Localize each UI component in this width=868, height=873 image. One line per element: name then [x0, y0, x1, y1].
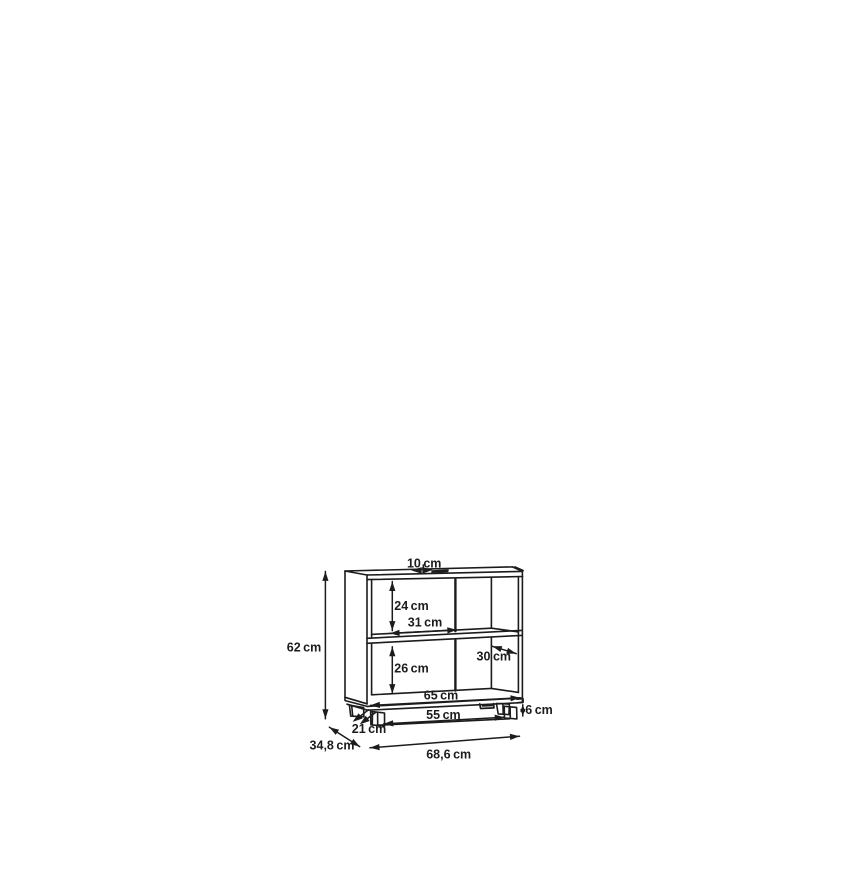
svg-text:24 cm: 24 cm: [394, 599, 428, 613]
svg-text:6 cm: 6 cm: [525, 703, 553, 717]
svg-text:31 cm: 31 cm: [408, 615, 442, 629]
svg-text:26 cm: 26 cm: [394, 662, 428, 676]
svg-text:34,8 cm: 34,8 cm: [310, 738, 355, 752]
svg-text:30 cm: 30 cm: [477, 650, 511, 664]
svg-text:62 cm: 62 cm: [287, 641, 321, 655]
svg-text:68,6 cm: 68,6 cm: [426, 747, 471, 761]
svg-text:21 cm: 21 cm: [352, 722, 386, 736]
